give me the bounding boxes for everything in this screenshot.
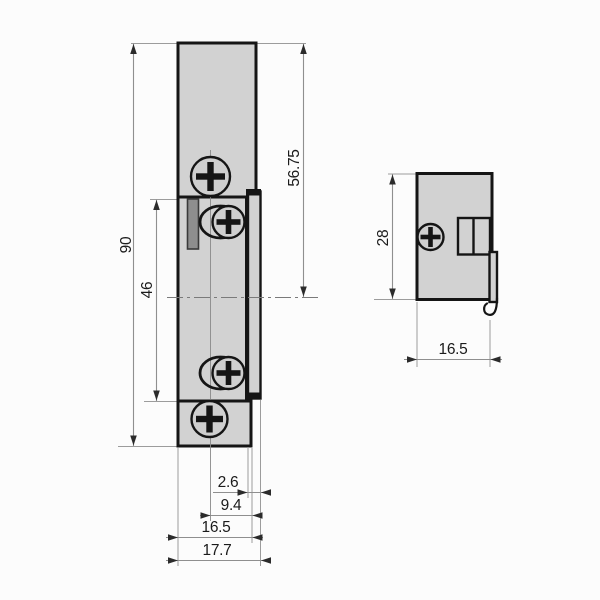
dim-overall-height: 90 — [118, 44, 137, 447]
dim-axis-to-edge: 9.4 — [200, 497, 263, 519]
dim-label-keeper-height: 46 — [139, 282, 156, 299]
dim-label-top-to-axis: 56.75 — [286, 149, 303, 186]
dim-label-overall-height: 90 — [118, 236, 135, 253]
dim-top-to-axis: 56.75 — [286, 44, 307, 298]
strike-lip — [248, 192, 261, 399]
latch-notch — [458, 218, 490, 255]
technical-drawing: 90 46 56.75 2.6 — [0, 0, 600, 600]
dim-lip-width: 2.6 — [213, 474, 271, 496]
dim-label-body-height: 28 — [375, 230, 392, 247]
lip-top-cap — [246, 189, 261, 196]
dim-plate-width: 16.5 — [166, 519, 263, 541]
dim-label-plate-width: 16.5 — [202, 519, 231, 536]
keeper-flap — [188, 199, 199, 249]
dim-label-axis-to-edge: 9.4 — [221, 497, 242, 514]
screw-bottom — [192, 401, 228, 437]
side-screw — [418, 224, 444, 250]
dim-label-lip-width: 2.6 — [218, 474, 239, 491]
dim-label-overall-width: 17.7 — [203, 542, 232, 559]
dim-label-body-depth: 16.5 — [439, 341, 468, 358]
dim-keeper-height: 46 — [139, 200, 160, 402]
dim-overall-width: 17.7 — [166, 542, 271, 564]
dim-body-height: 28 — [375, 174, 396, 299]
drawing-canvas: 90 46 56.75 2.6 — [0, 0, 600, 600]
lip-bottom-cap — [246, 393, 261, 400]
dim-body-depth: 16.5 — [404, 302, 502, 367]
front-view: 90 46 56.75 2.6 — [118, 43, 318, 566]
side-view: 28 16.5 — [374, 174, 502, 368]
screw-top — [191, 157, 230, 196]
